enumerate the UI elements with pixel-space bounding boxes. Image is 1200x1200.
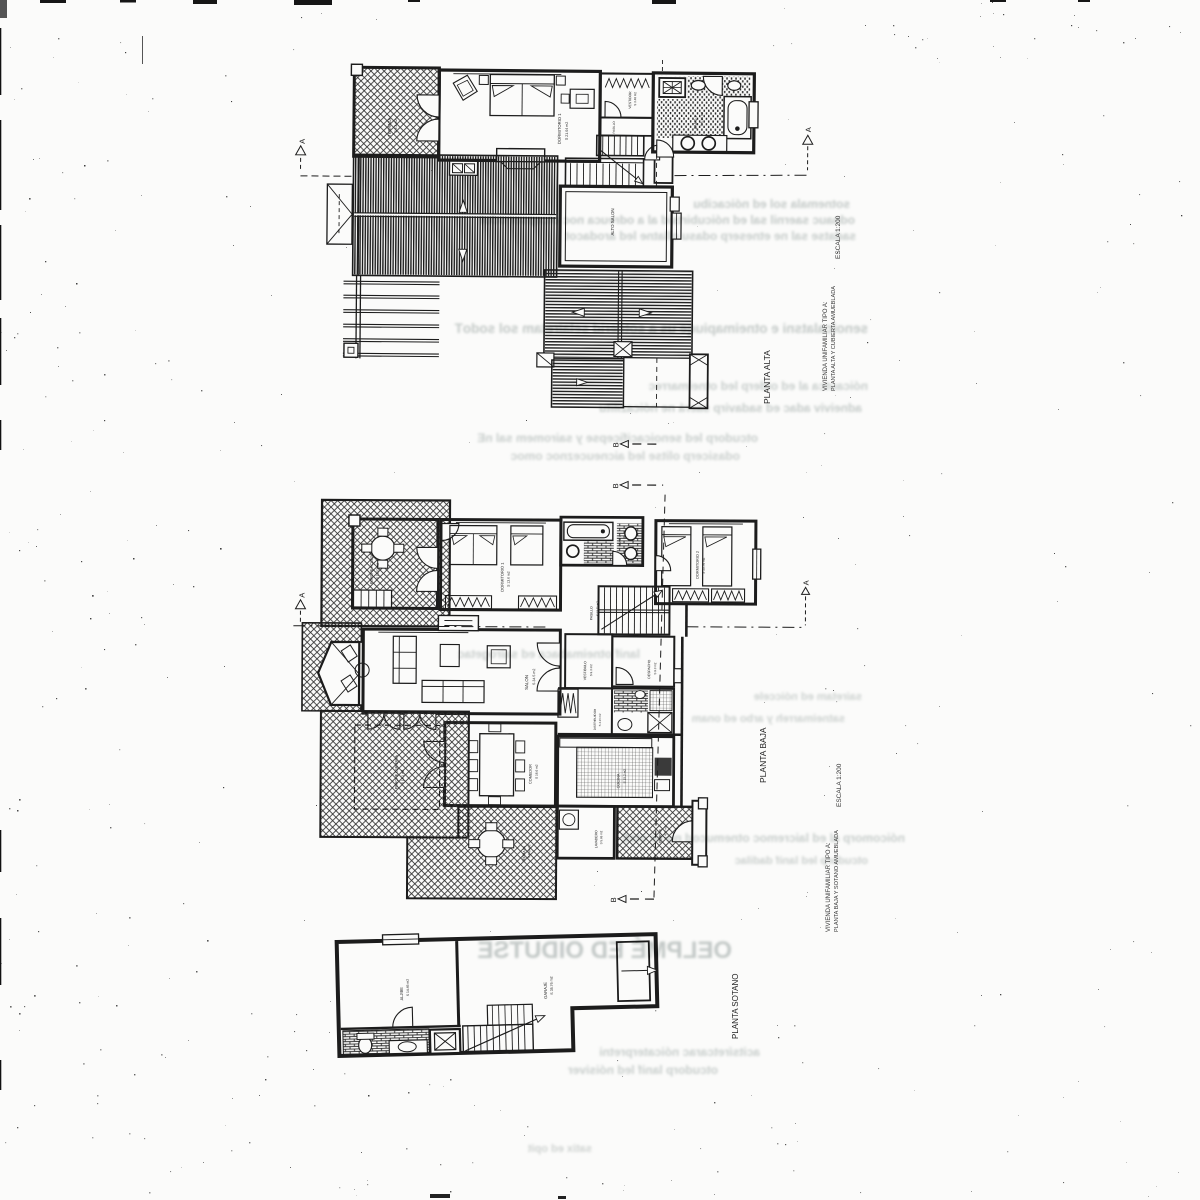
svg-text:COMEDOR: COMEDOR	[529, 764, 533, 784]
svg-text:PLANTA BAJA: PLANTA BAJA	[758, 727, 768, 783]
svg-text:COCINA: COCINA	[617, 773, 621, 788]
svg-text:PASILLO: PASILLO	[589, 606, 593, 620]
svg-text:satix ed opit: satix ed opit	[527, 1143, 592, 1155]
svg-text:VIVIENDA UNIFAMILIAR TIPO A:: VIVIENDA UNIFAMILIAR TIPO A:	[826, 842, 832, 932]
svg-text:B: B	[609, 897, 618, 902]
svg-text:S 13.76 m2: S 13.76 m2	[702, 557, 706, 574]
svg-text:sadatse sal ne etneserp odasu: sadatse sal ne etneserp odasu ollatne le…	[565, 229, 856, 243]
svg-text:S 8.66 m2: S 8.66 m2	[527, 844, 531, 858]
svg-text:S 4.16 m2: S 4.16 m2	[598, 713, 602, 726]
svg-text:lanif otneimabaca ed sairogeta: lanif otneimabaca ed sairogetac	[458, 647, 640, 661]
svg-text:S 34.5 m2: S 34.5 m2	[532, 669, 536, 685]
svg-text:A: A	[298, 593, 307, 598]
svg-text:S 8.16 m2: S 8.16 m2	[700, 112, 704, 127]
svg-text:PORCHE ACCESO: PORCHE ACCESO	[370, 553, 374, 585]
svg-text:S 13.52 m2: S 13.52 m2	[376, 563, 380, 580]
svg-text:adneiviv adac ed sadavirp saer: adneiviv adac ed sadavirp saerá ne nóica…	[599, 401, 862, 415]
svg-text:S 9.2 m2: S 9.2 m2	[394, 119, 398, 133]
svg-text:DORMITORIO 1: DORMITORIO 1	[557, 113, 562, 144]
svg-text:S 9.3 m2: S 9.3 m2	[653, 662, 657, 674]
svg-text:PLANTA ALTA Y CUBIERTA AMUEBLA: PLANTA ALTA Y CUBIERTA AMUEBLADA	[831, 286, 837, 391]
svg-text:SALON: SALON	[524, 675, 529, 690]
svg-text:PLANTA SOTANO: PLANTA SOTANO	[731, 974, 740, 1040]
svg-text:PORCHE CUBIERTA: PORCHE CUBIERTA	[395, 754, 399, 789]
svg-text:TERRAZA: TERRAZA	[522, 845, 526, 862]
svg-text:OELPMÉ ED OIDUTSE: OELPMÉ ED OIDUTSE	[477, 936, 732, 964]
svg-text:ALJIBE: ALJIBE	[399, 987, 404, 1001]
svg-text:GARAJE: GARAJE	[543, 982, 548, 999]
svg-text:VESTIBULO: VESTIBULO	[583, 661, 587, 680]
svg-text:sotnemala sol ed nóicacibu: sotnemala sol ed nóicacibu	[693, 197, 850, 211]
svg-text:PLANTA BAJA Y SOTANO AMUEBLADA: PLANTA BAJA Y SOTANO AMUEBLADA	[834, 830, 840, 932]
svg-text:LAVADERO: LAVADERO	[594, 830, 598, 848]
svg-text:BANO 1: BANO 1	[618, 535, 622, 546]
svg-text:S 14.45 m2: S 14.45 m2	[406, 979, 410, 997]
svg-text:B: B	[611, 483, 620, 488]
svg-text:nóicomorp al ed laicremoc otne: nóicomorp al ed laicremoc otnemucod nu s…	[621, 831, 905, 845]
svg-text:DORMITORIO 2: DORMITORIO 2	[696, 551, 700, 579]
svg-text:S 15.2 m2: S 15.2 m2	[623, 769, 627, 784]
svg-text:VESTIDOR: VESTIDOR	[628, 91, 632, 109]
svg-text:senoicalatsni e otneimapiuqe u: senoicalatsni e otneimapiuqe us a sotcer…	[454, 321, 868, 336]
svg-text:PLANTA ALTA: PLANTA ALTA	[762, 350, 772, 404]
svg-text:A: A	[804, 127, 813, 132]
svg-text:otcudorp led lanif dadilac: otcudorp led lanif dadilac	[735, 855, 868, 867]
svg-text:A: A	[298, 139, 307, 144]
svg-text:TERRAZA: TERRAZA	[387, 118, 392, 137]
svg-text:DISTRIBUIDOR: DISTRIBUIDOR	[593, 708, 597, 730]
svg-text:ESCALA 1:200: ESCALA 1:200	[835, 215, 842, 259]
svg-text:ESCALA 1:200: ESCALA 1:200	[836, 763, 843, 807]
svg-text:sairetam ed nóiccele: sairetam ed nóiccele	[754, 691, 862, 703]
svg-text:S 9.3 m2: S 9.3 m2	[589, 664, 593, 676]
svg-text:S 21.04 m2: S 21.04 m2	[565, 122, 569, 140]
svg-text:odnauc saernil sal ed nóicubir: odnauc saernil sal ed nóicubirtsid al a …	[480, 213, 855, 227]
svg-text:S 16.6 m2: S 16.6 m2	[535, 764, 539, 779]
svg-text:S 5.65 m2: S 5.65 m2	[599, 830, 603, 844]
svg-text:odasicerp olitse led aicneucez: odasicerp olitse led aicneuceznoc omoc	[510, 449, 740, 463]
svg-text:otcudorp led senoicacificepse: otcudorp led senoicacificepse y sairomem…	[477, 431, 758, 445]
svg-text:S 13.6 m2: S 13.6 m2	[507, 571, 511, 587]
svg-text:S 3.48 m2: S 3.48 m2	[633, 92, 637, 106]
svg-text:S 14.1 m2: S 14.1 m2	[401, 770, 405, 785]
svg-text:A: A	[802, 580, 811, 585]
svg-text:DESPACHO: DESPACHO	[647, 659, 651, 678]
svg-text:BANO 2: BANO 2	[694, 115, 698, 129]
svg-text:DORMITORIO 1: DORMITORIO 1	[500, 562, 505, 592]
svg-text:VIVIENDA UNIFAMILIAR TIPO A:: VIVIENDA UNIFAMILIAR TIPO A:	[823, 301, 829, 391]
svg-text:satneimarreh y arbo ed onam: satneimarreh y arbo ed onam	[691, 713, 845, 725]
svg-text:otcudorp lanif led nóisiver: otcudorp lanif led nóisiver	[568, 1063, 718, 1077]
svg-text:S 35.76 m2: S 35.76 m2	[550, 976, 554, 994]
svg-text:acitsíretcarac nóicaterpretni: acitsíretcarac nóicaterpretni	[599, 1045, 760, 1059]
svg-text:PASILLO: PASILLO	[612, 121, 616, 134]
